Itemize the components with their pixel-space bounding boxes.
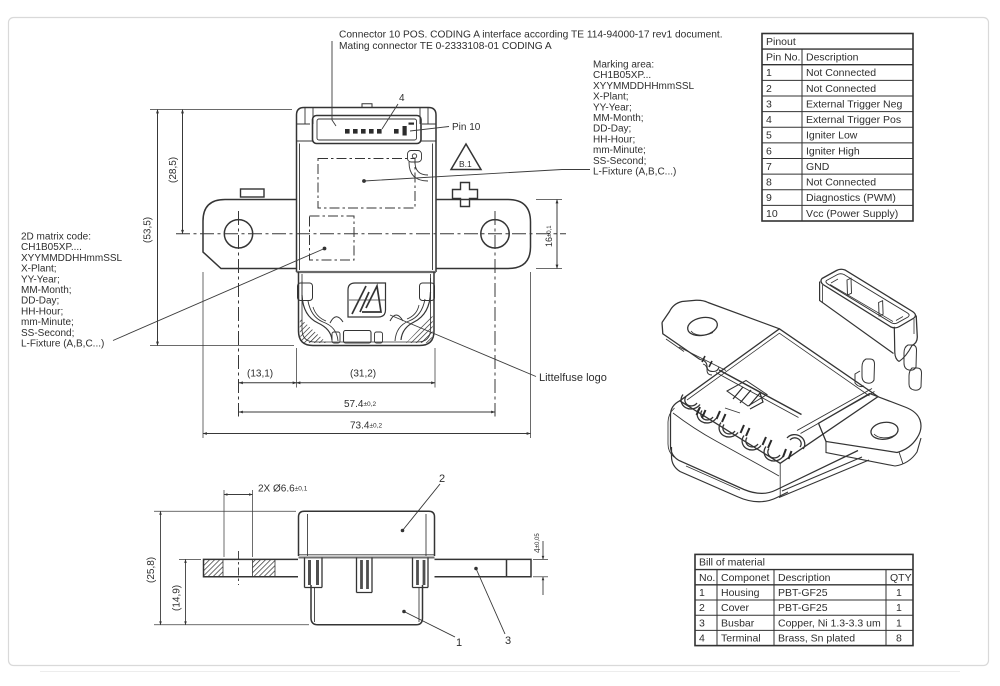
svg-text:Igniter Low: Igniter Low: [806, 130, 858, 142]
svg-text:8: 8: [766, 177, 772, 189]
svg-text:3: 3: [766, 98, 772, 110]
svg-text:73.4±0,2: 73.4±0,2: [350, 421, 382, 432]
svg-text:YY-Year;: YY-Year;: [21, 274, 60, 285]
svg-text:3: 3: [505, 635, 511, 647]
svg-text:1: 1: [896, 617, 902, 629]
svg-text:Diagnostics (PWM): Diagnostics (PWM): [806, 192, 896, 204]
svg-text:Busbar: Busbar: [721, 617, 755, 629]
svg-text:Mating connector TE 0-2333108-: Mating connector TE 0-2333108-01 CODING …: [339, 41, 552, 52]
svg-text:(28,5): (28,5): [168, 157, 179, 183]
svg-text:1: 1: [896, 602, 902, 614]
svg-text:1: 1: [766, 67, 772, 79]
svg-text:Pin No.: Pin No.: [766, 52, 800, 64]
svg-text:Igniter High: Igniter High: [806, 145, 860, 157]
svg-text:16±0,1: 16±0,1: [544, 225, 554, 247]
svg-text:mm-Minute;: mm-Minute;: [21, 317, 74, 328]
svg-text:XYYMMDDHHmmSSL: XYYMMDDHHmmSSL: [21, 253, 123, 264]
svg-text:4: 4: [699, 633, 705, 645]
svg-text:7: 7: [766, 161, 772, 173]
svg-text:CH1B05XP...: CH1B05XP...: [593, 70, 651, 81]
svg-text:Marking area:: Marking area:: [593, 60, 654, 71]
svg-text:L-Fixture (A,B,C...): L-Fixture (A,B,C...): [593, 167, 676, 178]
svg-text:2D matrix code:: 2D matrix code:: [21, 232, 91, 243]
svg-text:SS-Second;: SS-Second;: [21, 328, 74, 339]
svg-text:2: 2: [699, 602, 705, 614]
svg-text:QTY: QTY: [890, 572, 912, 584]
svg-text:External Trigger Pos: External Trigger Pos: [806, 114, 901, 126]
svg-text:Housing: Housing: [721, 587, 760, 599]
svg-text:PBT-GF25: PBT-GF25: [778, 602, 828, 614]
svg-text:No.: No.: [699, 572, 715, 584]
svg-text:DD-Day;: DD-Day;: [21, 296, 59, 307]
svg-text:MM-Month;: MM-Month;: [21, 285, 72, 296]
svg-text:Terminal: Terminal: [721, 633, 761, 645]
svg-text:DD-Day;: DD-Day;: [593, 124, 631, 135]
svg-text:Componet: Componet: [721, 572, 770, 584]
svg-text:YY-Year;: YY-Year;: [593, 102, 632, 113]
svg-text:6: 6: [766, 145, 772, 157]
svg-text:2: 2: [439, 473, 445, 485]
svg-text:4: 4: [399, 93, 405, 104]
svg-text:(53,5): (53,5): [143, 217, 154, 243]
svg-text:Description: Description: [806, 52, 859, 64]
svg-text:CH1B05XP....: CH1B05XP....: [21, 242, 82, 253]
svg-text:HH-Hour;: HH-Hour;: [21, 306, 63, 317]
svg-text:B.1: B.1: [459, 159, 472, 169]
svg-text:Pin 10: Pin 10: [452, 122, 481, 133]
svg-text:mm-Minute;: mm-Minute;: [593, 145, 646, 156]
svg-text:4±0,05: 4±0,05: [532, 533, 542, 553]
svg-text:X-Plant;: X-Plant;: [593, 92, 629, 103]
svg-text:8: 8: [896, 633, 902, 645]
svg-text:PBT-GF25: PBT-GF25: [778, 587, 828, 599]
svg-text:9: 9: [766, 192, 772, 204]
svg-text:2X Ø6.6±0,1: 2X Ø6.6±0,1: [258, 484, 308, 495]
svg-text:MM-Month;: MM-Month;: [593, 113, 644, 124]
svg-text:Vcc (Power Supply): Vcc (Power Supply): [806, 208, 898, 220]
svg-text:Description: Description: [778, 572, 831, 584]
svg-text:External Trigger Neg: External Trigger Neg: [806, 98, 902, 110]
svg-text:Not Connected: Not Connected: [806, 177, 876, 189]
svg-text:Littelfuse logo: Littelfuse logo: [539, 372, 607, 384]
svg-text:5: 5: [766, 130, 772, 142]
svg-text:1: 1: [896, 587, 902, 599]
svg-text:10: 10: [766, 208, 778, 220]
svg-text:Copper, Ni 1.3-3.3 um: Copper, Ni 1.3-3.3 um: [778, 617, 881, 629]
svg-text:1: 1: [456, 637, 462, 649]
svg-text:XYYMMDDHHmmSSL: XYYMMDDHHmmSSL: [593, 81, 695, 92]
svg-text:1: 1: [699, 587, 705, 599]
svg-text:Cover: Cover: [721, 602, 750, 614]
svg-text:Not Connected: Not Connected: [806, 83, 876, 95]
svg-text:3: 3: [699, 617, 705, 629]
svg-text:(13,1): (13,1): [247, 369, 273, 380]
svg-text:SS-Second;: SS-Second;: [593, 156, 646, 167]
svg-text:(14,9): (14,9): [172, 585, 183, 611]
svg-text:HH-Hour;: HH-Hour;: [593, 134, 635, 145]
svg-text:(31,2): (31,2): [350, 369, 376, 380]
svg-text:Brass, Sn plated: Brass, Sn plated: [778, 633, 855, 645]
svg-text:(25,8): (25,8): [146, 557, 157, 583]
svg-text:L-Fixture (A,B,C...): L-Fixture (A,B,C...): [21, 339, 104, 350]
svg-text:Not Connected: Not Connected: [806, 67, 876, 79]
svg-text:GND: GND: [806, 161, 830, 173]
svg-text:Bill of material: Bill of material: [699, 557, 765, 569]
svg-text:Connector 10 POS. CODING A int: Connector 10 POS. CODING A interface acc…: [339, 30, 723, 41]
svg-text:X-Plant;: X-Plant;: [21, 264, 57, 275]
svg-text:4: 4: [766, 114, 772, 126]
svg-text:Pinout: Pinout: [766, 36, 796, 48]
svg-text:2: 2: [766, 83, 772, 95]
svg-text:57.4±0,2: 57.4±0,2: [344, 399, 376, 410]
